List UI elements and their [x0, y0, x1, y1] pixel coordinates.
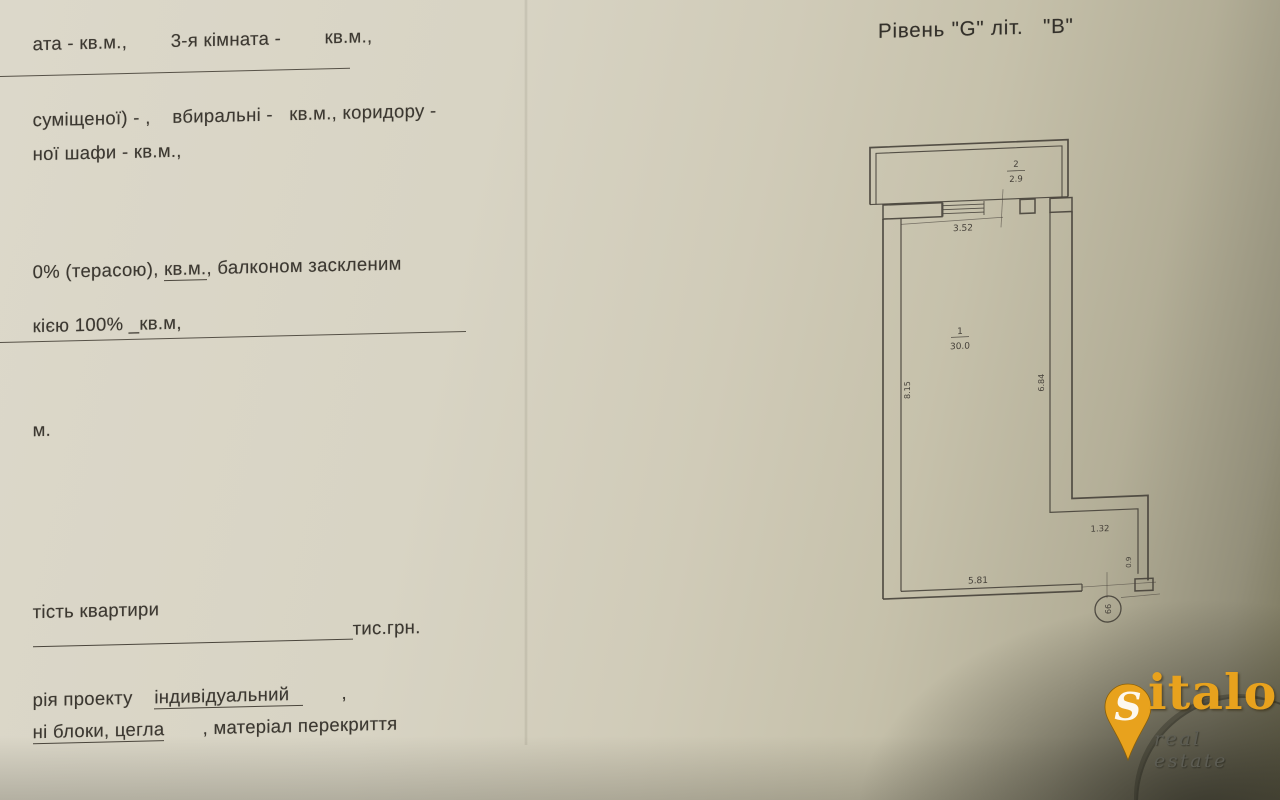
form-line-closet: ної шафи - кв.м.,	[0, 118, 182, 188]
paper-fold	[524, 0, 528, 745]
sitalo-logo: S italo real estate	[1096, 668, 1276, 788]
room2-number-label: 2	[1013, 160, 1018, 170]
right-wall-dim-label: 6.84	[1037, 374, 1046, 392]
form-line-terrace-pre: 0% (терасою),	[33, 258, 164, 282]
logo-brand-text: italo	[1148, 668, 1277, 717]
dimension-lines	[901, 183, 1160, 606]
document-photo: ата - кв.м., 3-я кімната - кв.м., суміще…	[0, 0, 1280, 800]
form-line-terrace-underlined: кв.м.	[164, 257, 206, 281]
form-line-m-text: м.	[33, 419, 51, 440]
form-line-materials-underlined: ні блоки, цегла	[33, 718, 165, 744]
step-dim-label: 1.32	[1091, 524, 1110, 535]
room-walls	[883, 208, 1153, 601]
form-text-column: ата - кв.м., 3-я кімната - кв.м., суміще…	[0, 0, 480, 760]
form-line-m: м.	[0, 397, 51, 464]
room1-area-label: 30.0	[950, 342, 970, 353]
form-line-rooms: ата - кв.м., 3-я кімната - кв.м.,	[0, 3, 372, 78]
logo-initial: S	[1114, 684, 1141, 729]
form-line-materials: ні блоки, цегла , матеріал перекриття	[0, 691, 398, 766]
window-symbol	[943, 201, 984, 217]
cost-blank-field	[33, 620, 353, 648]
plan-title: Рівень "G" літ. "В"	[878, 12, 1158, 44]
form-line-terrace-post: , балконом заскленим	[207, 253, 402, 279]
form-line-closet-text: ної шафи - кв.м.,	[33, 140, 182, 165]
bottom-dim-label: 5.81	[968, 576, 988, 587]
logo-tagline: real estate	[1154, 728, 1276, 772]
room-label-fraction-lines	[951, 170, 1025, 337]
circle-mark-label: 66	[1104, 604, 1113, 615]
balcony-walls	[870, 140, 1068, 205]
room1-number-label: 1	[957, 327, 963, 337]
form-line-loggia: кією 100% _кв.м,	[0, 290, 182, 360]
notch-dim-label: 0.9	[1125, 556, 1133, 567]
form-line-cost-value: тис.грн.	[0, 594, 421, 670]
form-line-loggia-text: кією 100% _кв.м,	[33, 312, 182, 337]
room2-area-label: 2.9	[1009, 174, 1023, 185]
window-dim-label: 3.52	[953, 223, 973, 234]
form-line-cost-units: тис.грн.	[353, 616, 421, 639]
location-pin-icon: S	[1102, 682, 1154, 764]
form-line-materials-post: , матеріал перекриття	[164, 713, 397, 739]
left-wall-dim-label: 8.15	[903, 381, 912, 399]
floor-plan-drawing: 2 2.9 1 30.0 3.52 8.15 6.84 1.32 5.81 0.…	[860, 128, 1160, 660]
form-line-rooms-text: ата - кв.м., 3-я кімната - кв.м.,	[33, 25, 373, 54]
